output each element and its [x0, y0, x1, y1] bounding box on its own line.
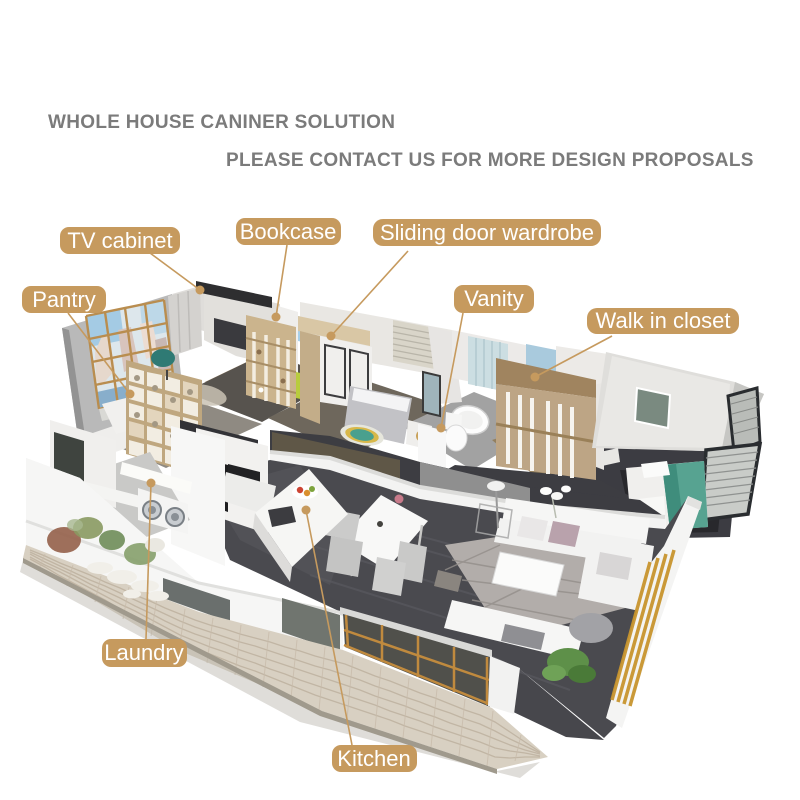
svg-text:Vanity: Vanity	[464, 286, 524, 311]
svg-text:PLEASE CONTACT US FOR MORE DES: PLEASE CONTACT US FOR MORE DESIGN PROPOS…	[226, 150, 754, 171]
svg-text:Sliding door wardrobe: Sliding door wardrobe	[380, 220, 594, 245]
svg-text:Laundry: Laundry	[104, 640, 184, 665]
svg-text:WHOLE HOUSE CANINER SOLUTION: WHOLE HOUSE CANINER SOLUTION	[48, 112, 395, 133]
svg-text:Pantry: Pantry	[32, 287, 96, 312]
svg-text:Walk in closet: Walk in closet	[596, 308, 731, 333]
svg-text:Kitchen: Kitchen	[337, 746, 410, 771]
svg-text:TV cabinet: TV cabinet	[67, 228, 172, 253]
svg-text:Bookcase: Bookcase	[240, 219, 337, 244]
